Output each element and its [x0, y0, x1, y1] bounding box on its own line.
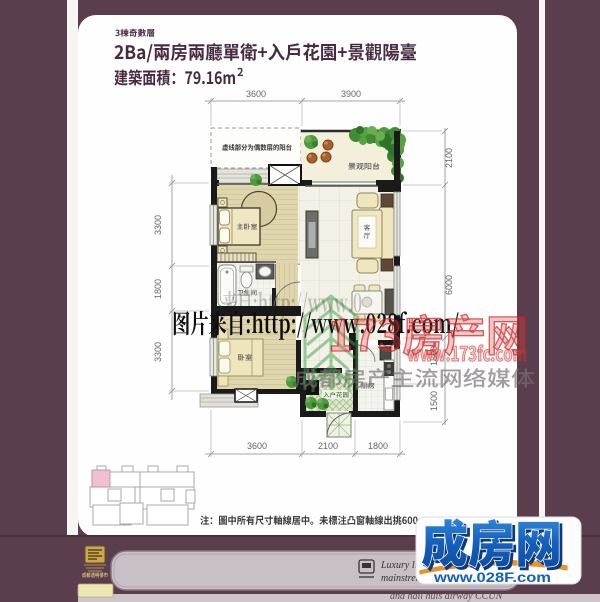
svg-text:2100: 2100: [318, 441, 338, 451]
svg-text:www.028F.com: www.028F.com: [433, 569, 551, 585]
svg-text:3600: 3600: [247, 441, 267, 451]
svg-text:1800: 1800: [368, 441, 388, 451]
svg-text:3600: 3600: [246, 89, 266, 99]
svg-text:1500: 1500: [429, 391, 439, 411]
svg-text:3300: 3300: [153, 342, 163, 362]
svg-text:3300: 3300: [153, 215, 163, 235]
svg-text:2100: 2100: [444, 148, 454, 168]
svg-text:1800: 1800: [153, 279, 163, 299]
svg-text:3900: 3900: [341, 89, 361, 99]
svg-text:and hail huis airway CCUN: and hail huis airway CCUN: [390, 591, 504, 602]
svg-text:6000: 6000: [444, 275, 454, 295]
